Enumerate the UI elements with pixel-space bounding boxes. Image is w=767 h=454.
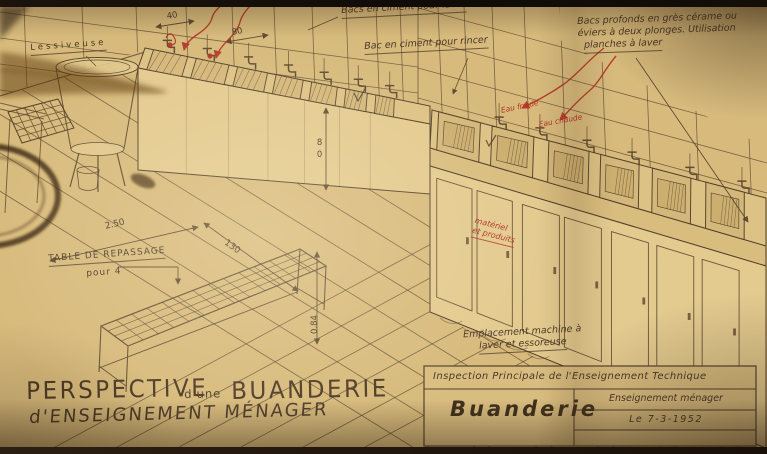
ironing-table <box>99 249 326 392</box>
photo-edge-top <box>0 0 767 7</box>
titleblock-date: Le 7-3-1952 <box>576 414 756 426</box>
dim-084: 0.84 <box>310 315 321 334</box>
main-title-word2: d'une <box>184 386 221 401</box>
photo-edge-bottom <box>0 447 767 454</box>
titleblock-header: Inspection Principale de l'Enseignement … <box>433 371 707 384</box>
dim-80-top: 80 <box>231 26 244 38</box>
titleblock-dept: Enseignement ménager <box>576 393 756 405</box>
dim-40: 40 <box>166 10 179 22</box>
scanned-laundry-perspective-drawing: Lessiveuse Bacs en ciment pour laver Bac… <box>0 0 767 454</box>
deep-sinks-note: Bacs profonds en grès cérame ou éviers à… <box>577 10 738 53</box>
deep-sinks-note-line3: planches à laver <box>584 37 663 54</box>
dim-80-height: 80 <box>314 138 325 162</box>
